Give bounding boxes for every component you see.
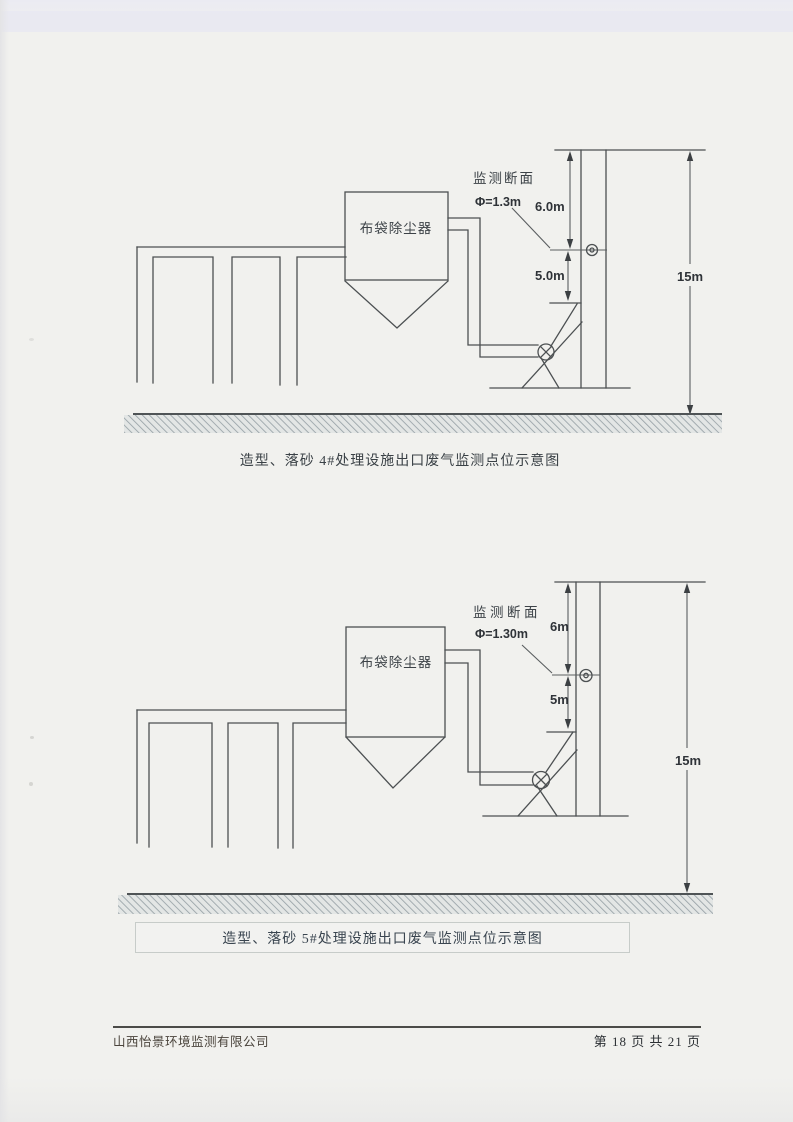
scan-speck xyxy=(29,782,33,786)
monitoring-section-label: 监测断面 xyxy=(473,171,535,186)
dimension-below-port: 5m xyxy=(550,676,571,729)
dimension-below-label: 5.0m xyxy=(535,268,565,283)
monitoring-section: 监测断面 Φ=1.30m xyxy=(473,605,600,682)
leader-line xyxy=(522,645,552,673)
fan-symbol xyxy=(522,304,582,388)
dimension-above-port: 6.0m xyxy=(535,151,573,249)
diagram-bottom-caption-box: 造型、落砂 5#处理设施出口废气监测点位示意图 xyxy=(135,922,630,953)
scan-edge-band xyxy=(0,11,793,32)
monitoring-section-label: 监测断面 xyxy=(473,605,541,620)
dimension-stack-height: 15m xyxy=(677,151,703,415)
diagram-bottom-monitoring-schematic: 布袋除尘器 监测断面 Φ xyxy=(100,570,740,930)
footer-page-number: 第 18 页 共 21 页 xyxy=(594,1031,701,1050)
dimension-below-label: 5m xyxy=(550,692,569,707)
leader-line xyxy=(512,208,550,248)
outlet-duct xyxy=(448,218,538,357)
diameter-label: Φ=1.3m xyxy=(475,195,521,209)
scan-speck xyxy=(30,736,34,739)
stack-height-label: 15m xyxy=(675,753,701,768)
hood-duct-manifold xyxy=(137,710,346,848)
dimension-above-label: 6.0m xyxy=(535,199,565,214)
stack-height-label: 15m xyxy=(677,269,703,284)
dimension-stack-height: 15m xyxy=(675,583,701,893)
bag-filter-label: 布袋除尘器 xyxy=(360,221,433,236)
footer-company-name: 山西怡景环境监测有限公司 xyxy=(113,1031,269,1050)
diagram-top-caption: 造型、落砂 4#处理设施出口废气监测点位示意图 xyxy=(100,450,700,470)
dimension-above-port: 6m xyxy=(550,583,571,674)
ground-hatch xyxy=(118,894,713,914)
bag-filter-unit: 布袋除尘器 xyxy=(345,192,448,328)
dimension-below-port: 5.0m xyxy=(535,251,571,301)
dimension-above-label: 6m xyxy=(550,619,569,634)
scan-edge-shade xyxy=(0,0,9,1122)
page-footer: 山西怡景环境监测有限公司 第 18 页 共 21 页 xyxy=(113,1026,701,1050)
diagram-top-monitoring-schematic: 布袋除尘器 监测断面 Φ xyxy=(100,140,740,450)
diameter-label: Φ=1.30m xyxy=(475,627,528,641)
diagram-bottom-caption: 造型、落砂 5#处理设施出口废气监测点位示意图 xyxy=(222,928,543,948)
bag-filter-unit: 布袋除尘器 xyxy=(346,627,445,788)
bag-filter-label: 布袋除尘器 xyxy=(360,655,433,670)
scanned-document-page: 布袋除尘器 监测断面 Φ xyxy=(0,0,793,1122)
ground-hatch xyxy=(124,414,722,433)
fan-symbol xyxy=(518,732,577,816)
hood-duct-manifold xyxy=(137,247,346,385)
scan-speck xyxy=(29,338,34,341)
outlet-duct xyxy=(445,650,533,785)
